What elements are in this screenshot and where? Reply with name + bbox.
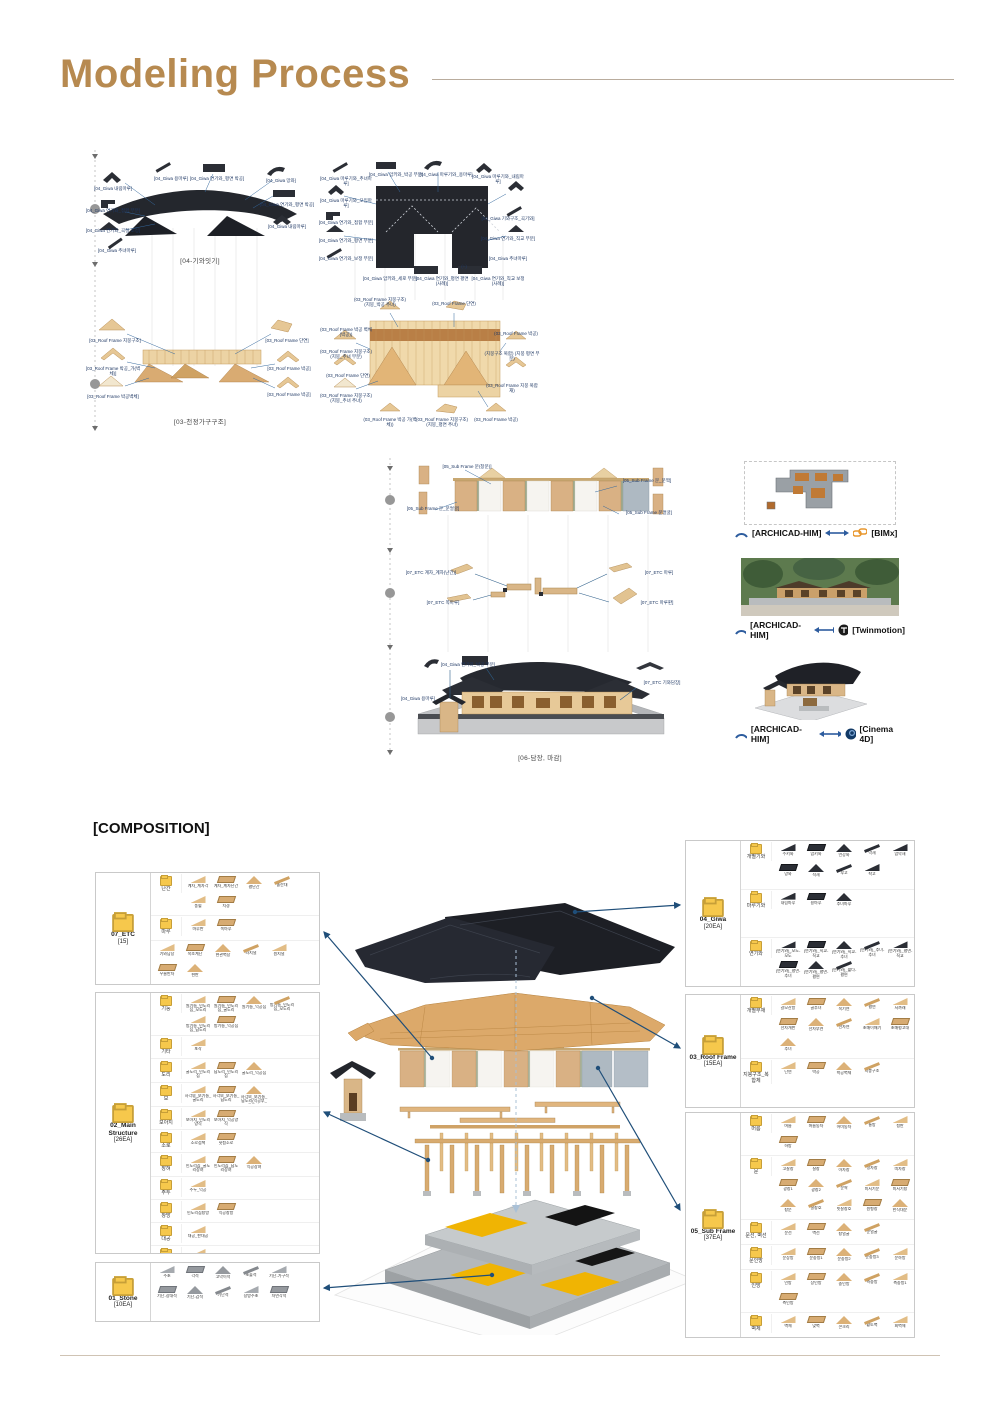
part-item-label: 선자부연	[803, 1027, 830, 1036]
part-item: 적새	[803, 863, 830, 882]
part-item-label: 황토벽	[859, 1323, 886, 1332]
panel-title: 04_Giwa	[700, 916, 726, 924]
twinmotion-render-thumbnail	[741, 558, 899, 616]
part-label: [04_Giwa 연기와_평면 박공]	[189, 176, 245, 181]
part-item: 민도리집_굴도리장혀	[185, 1155, 212, 1174]
part-item-label: 살창	[803, 1167, 830, 1176]
swap-arrows-icon	[819, 730, 841, 738]
part-item: 초매평고대	[887, 1017, 914, 1036]
part-item: (연기와)_짧다-평면	[831, 960, 858, 979]
part-item-label: 원기둥_민도리집_모도리	[185, 1004, 212, 1013]
part-item-label: 선자연	[831, 1025, 858, 1034]
part-icon	[865, 864, 880, 871]
part-item: 중인방	[831, 1272, 858, 1291]
poster-page: Modeling Process	[0, 0, 1000, 1413]
part-item: 자연각석	[266, 1285, 293, 1304]
part-item-label: 라지널	[238, 951, 265, 960]
part-item-label: 보아지_익공양식	[213, 1118, 240, 1127]
part-item-label: 띠자창	[887, 1167, 914, 1176]
part-item-label: (연기와)_추녀-추녀	[859, 948, 886, 957]
cinema4d-icon	[845, 728, 856, 740]
part-item-label: 사각보_보기둥_납도리	[213, 1094, 240, 1103]
wood-roof-layer	[360, 993, 665, 1051]
part-item: 측중방1	[887, 1272, 914, 1291]
part-item-label: 창문	[775, 1208, 802, 1217]
part-item-label: 막새	[859, 851, 886, 860]
part-item: 암막새	[887, 843, 914, 862]
part-item: 계자_계자각	[185, 875, 212, 894]
part-icon	[806, 941, 825, 948]
part-item-label: 추녀	[775, 1047, 802, 1056]
part-item-label: 자연각석	[266, 1294, 293, 1303]
part-label: [04_Giwa 암키와_박공 부분]	[368, 172, 424, 177]
part-item-label: 문하방	[887, 1256, 914, 1265]
part-icon	[191, 896, 206, 903]
part-icon	[216, 1133, 235, 1140]
cinema4d-render-thumbnail	[741, 650, 899, 720]
part-item-label: 헛첨소로	[213, 1141, 240, 1150]
part-icon	[806, 1159, 825, 1166]
part-icon	[216, 896, 235, 903]
roof-frame-elevation-diagram: [03_Roof Frame 지붕구조][03_Roof Frame 단연][0…	[85, 298, 315, 426]
part-item: 원기둥_익공집	[241, 995, 268, 1014]
folder-icon	[750, 1223, 762, 1233]
part-item: 목조계단	[182, 943, 209, 962]
part-icon	[187, 1286, 203, 1294]
part-item-label: 평난간	[241, 885, 268, 894]
swap-arrows-icon	[825, 529, 849, 537]
part-item-label: 원기둥_익공집	[241, 1005, 268, 1014]
part-item-label: 벽체	[775, 1324, 802, 1333]
part-icon	[780, 1038, 796, 1046]
part-item-label: 치경	[213, 904, 240, 913]
part-item: 측인방	[775, 1292, 802, 1310]
roof-frame-plan-diagram: (03_Roof Frame 지붕구조) (지붕_박공 추녀)(03_Roof …	[318, 293, 533, 433]
group-label: 장혀	[161, 1167, 170, 1173]
part-icon	[216, 1203, 235, 1210]
part-icon	[836, 941, 852, 949]
part-item: 각석	[182, 1265, 209, 1284]
export-caption: [ARCHICAD-HIM] [Twinmotion]	[735, 620, 905, 640]
part-label: [03_Roof Frame 박공]	[261, 392, 317, 397]
group-label: 기타	[161, 1050, 170, 1056]
part-group: 기둥원기둥_민도리집_모도리원기둥_민도리집_굴도리원기둥_익공집방기둥_민도리…	[151, 993, 319, 1035]
part-item: 콘크리	[831, 1315, 858, 1334]
part-item-label: 용마루	[803, 901, 830, 910]
panel-02-main-structure: 02_Main Structure[26EA]기둥원기둥_민도리집_모도리원기둥…	[95, 992, 320, 1254]
part-icon	[246, 996, 262, 1004]
part-item: 초매이매기	[859, 1017, 886, 1036]
part-icon	[806, 1248, 825, 1255]
part-group: 기와담장목조계단현관벽장라지널원지널우물반자현판	[151, 940, 319, 984]
folder-icon	[160, 1180, 172, 1190]
part-item: (연기와)_모도-모도	[775, 940, 802, 959]
part-item-label: 미서기문	[859, 1187, 886, 1196]
part-item: 문상방	[775, 1247, 802, 1266]
part-label: [05_Sub Frame 문_문짝]	[619, 478, 675, 483]
part-label: [04_Giwa 추녀마루]	[480, 256, 536, 261]
part-icon	[893, 1159, 908, 1166]
part-icon	[191, 1203, 206, 1210]
part-item: 인방	[775, 1272, 802, 1291]
part-item: 목기연	[831, 997, 858, 1016]
part-item-label: 어미동자	[831, 1125, 858, 1134]
part-icon	[191, 1249, 206, 1254]
part-item-label: 방기둥_민도리집_모도리	[269, 1003, 296, 1012]
part-icon	[865, 1018, 880, 1025]
part-item: 부고	[831, 863, 858, 882]
part-item: 원기둥_민도리집_모도리	[185, 995, 212, 1014]
part-item-label: (연기와)_짧다-평면	[831, 968, 858, 977]
part-icon	[191, 996, 206, 1003]
part-item-label: 보아지_민도리양식	[185, 1118, 212, 1127]
folder-icon	[112, 1278, 134, 1296]
part-item-label: 포작	[185, 1047, 212, 1056]
export-left-app: [ARCHICAD-HIM]	[750, 620, 809, 640]
part-label: [04_Giwa 추녀마루]	[89, 248, 145, 253]
part-item: 황토벽	[859, 1315, 886, 1334]
part-item: 민도리집창방	[185, 1202, 212, 1220]
part-group: 도리굴도리_민도리집납도리_민도리집굴도리_익공집	[151, 1058, 319, 1082]
folder-icon	[160, 1226, 172, 1236]
folder-icon	[160, 1249, 172, 1254]
part-item-label: 주초	[154, 1274, 181, 1283]
part-label: (03_Roof Frame 단연)	[320, 373, 376, 378]
etc-parts-diagram: [07_ETC 계자_계자(난간)][07_ETC 쪽마루][07_ETC 마루…	[395, 548, 685, 618]
page-title: Modeling Process	[60, 52, 410, 97]
part-item-label: 광창1	[775, 1187, 802, 1196]
part-icon	[806, 844, 825, 851]
part-label: [03_Roof Frame 박공벽체]	[85, 394, 141, 399]
part-item-label: 맞벽	[803, 1324, 830, 1333]
part-label: [04_Giwa 연기와_접합 부분]	[85, 208, 141, 213]
part-item-label: 문중방1	[803, 1256, 830, 1265]
part-icon	[191, 1180, 206, 1187]
part-icon	[836, 1159, 852, 1167]
folder-icon	[160, 919, 172, 929]
part-item-label: 골추녀	[803, 1006, 830, 1015]
part-label: [05_Sub Frame 문_문얼굴]	[405, 506, 461, 511]
folder-icon	[160, 1110, 172, 1120]
part-item: 고살창	[775, 1158, 802, 1177]
part-icon	[191, 1110, 206, 1117]
part-icon	[893, 1316, 908, 1323]
part-item: 선자연	[831, 1017, 858, 1036]
panel-count: [15]	[118, 939, 128, 945]
part-item: 현관벽장	[210, 943, 237, 962]
part-item-label: (연기와)_평면-추녀	[775, 969, 802, 978]
part-label: [03_Roof Frame 박공_가(벽체)]	[85, 366, 141, 376]
part-item: 빗살창호	[831, 1198, 858, 1217]
export-card-twinmotion: [ARCHICAD-HIM] [Twinmotion]	[735, 558, 905, 640]
part-item-label: 인방	[775, 1281, 802, 1290]
part-label: (03_Roof Frame 박공)	[488, 331, 544, 336]
diagram-caption: [03-천정가구구조]	[85, 416, 315, 426]
part-item: 아자창	[831, 1158, 858, 1177]
part-label: [04_Giwa 내림마루]	[85, 186, 141, 191]
part-item: (연기와)_직교-직교	[803, 940, 830, 959]
part-icon	[781, 1273, 796, 1280]
part-icon	[781, 1159, 796, 1166]
part-item-label: 문짝	[831, 1186, 858, 1195]
part-item-label: 서까래	[887, 1006, 914, 1015]
part-icon	[272, 1266, 287, 1273]
part-item-label: 마루판	[185, 927, 212, 936]
group-label: 개별부재	[747, 1009, 765, 1015]
folder-icon	[750, 1316, 762, 1326]
bottom-rule	[60, 1355, 940, 1356]
export-right-app: [Twinmotion]	[852, 625, 905, 635]
part-item-label: 굴도리_민도리집	[185, 1070, 212, 1079]
part-item: 기단-장대석	[154, 1285, 181, 1304]
part-item-label: 우물반자	[154, 972, 181, 981]
part-item: 하방	[775, 1135, 802, 1153]
export-caption: [ARCHICAD-HIM] [Cinema 4D]	[735, 724, 905, 744]
part-icon	[216, 1086, 235, 1093]
part-icon	[781, 1116, 796, 1123]
part-icon	[246, 876, 262, 884]
part-icon	[216, 1062, 235, 1069]
part-icon	[781, 1248, 796, 1255]
part-item: 막새	[859, 843, 886, 862]
part-label: [03_Roof Frame 단연]	[259, 338, 315, 343]
folder-icon	[750, 893, 762, 903]
part-label: [04_Giwa 암키와_세로 부분]	[362, 276, 418, 281]
folder-icon	[702, 899, 724, 917]
part-item-label: 굴도리_익공집	[241, 1071, 268, 1080]
archicad-arc-icon	[735, 730, 747, 739]
part-item-label: 상인방	[803, 1281, 830, 1290]
part-icon	[216, 1156, 235, 1163]
group-label: 도리	[161, 1073, 170, 1079]
part-item-label: 기와담장	[154, 952, 181, 961]
part-icon	[246, 1156, 262, 1164]
part-item: (연기와)_추녀-추녀	[859, 940, 886, 959]
folder-icon	[160, 1086, 172, 1096]
part-item: 방기둥_민도리집_모도리	[269, 995, 296, 1014]
part-item-label: 살창호	[803, 1206, 830, 1215]
folder-icon	[160, 996, 172, 1006]
group-label: 난간	[161, 887, 170, 893]
part-label: [04_Giwa 마루기와_모임마루]	[318, 198, 374, 208]
part-item: 망와	[775, 863, 802, 882]
part-item-label: 원기둥_민도리집_굴도리	[213, 1004, 240, 1013]
part-icon	[836, 1223, 852, 1231]
folder-icon	[750, 844, 762, 854]
part-item: 상인방	[803, 1272, 830, 1291]
part-label: [04_Giwa 연기와_평면 부분]	[318, 238, 374, 243]
part-group: 벽체벽체맞벽콘크리황토벽회벽체	[741, 1312, 914, 1337]
part-item: 평연	[859, 997, 886, 1016]
group-label: 창방	[161, 1214, 170, 1220]
group-label: 문	[754, 1170, 759, 1176]
part-item: 박공벽체	[831, 1061, 858, 1080]
group-label: 문선, 벽선	[745, 1234, 766, 1240]
part-item: 골추녀	[803, 997, 830, 1016]
wall-subframe-diagram: [05_Sub Frame 문(창문)][05_Sub Frame 문_문짝][…	[395, 458, 685, 536]
part-item-label: 광창2	[803, 1188, 830, 1197]
part-item: 헛첨소로	[213, 1132, 240, 1150]
part-item: 주두_익공	[185, 1179, 212, 1197]
part-item: 용마루	[803, 892, 830, 911]
part-item-label: 장방주초	[238, 1294, 265, 1303]
export-caption: [ARCHICAD-HIM] [BIMx]	[735, 528, 905, 538]
part-item: 원형창	[859, 1198, 886, 1217]
roof-frame-plan-art	[318, 293, 533, 433]
panel-count: [10EA]	[114, 1302, 132, 1308]
part-group: 난간계자_계자각계자_계자난간평난간돌란대풍혈치경	[151, 873, 319, 915]
part-item: 띠자창	[887, 1158, 914, 1177]
part-item-label: 돌란대	[269, 883, 296, 892]
part-item: 계자_계자난간	[213, 875, 240, 894]
part-item: 암키와	[803, 843, 830, 862]
part-group: 보아지보아지_민도리양식보아지_익공양식	[151, 1106, 319, 1129]
part-label: [04_Giwa 용마루]	[390, 696, 446, 701]
part-icon	[836, 998, 852, 1006]
part-icon	[837, 1199, 852, 1206]
part-item: 돌란대	[269, 875, 296, 894]
part-item: 착고	[859, 863, 886, 882]
part-item: 라지널	[238, 943, 265, 962]
part-item-label: 박공벽체	[831, 1071, 858, 1080]
folder-icon	[702, 1211, 724, 1229]
folder-icon	[160, 1133, 172, 1143]
part-icon	[808, 961, 824, 969]
folder-icon	[112, 1105, 134, 1123]
part-item: 단연	[775, 1061, 802, 1080]
part-item: 창얼굴	[831, 1222, 858, 1241]
part-icon	[893, 941, 908, 948]
timber-structure-layer	[415, 1125, 640, 1196]
part-item-label: 소로접책	[185, 1141, 212, 1150]
part-item-label: 사각보_보기둥_납도리(익공부_굴도리)	[241, 1095, 268, 1104]
part-item: 광창1	[775, 1178, 802, 1197]
part-item-label: 부고	[831, 871, 858, 880]
part-item-label: (연기와)_모도-모도	[775, 949, 802, 958]
part-item-label: 착고	[859, 872, 886, 881]
part-label: (03_Roof Frame 지붕구조) (지붕_추녀 추녀)	[318, 393, 374, 403]
part-group: 지붕구조_복합체단연박공박공벽체지붕구조	[741, 1058, 914, 1107]
part-item: 선자개판	[775, 1017, 802, 1036]
part-icon	[778, 1018, 797, 1025]
part-item-label: 현판	[182, 973, 209, 982]
part-icon	[191, 1226, 206, 1233]
part-item-label: 측중방1	[887, 1281, 914, 1290]
part-label: (03_Roof Frame 지붕구조) (지붕_추녀 부분)	[318, 349, 374, 359]
part-label: [04_Giwa 망와]	[253, 178, 309, 183]
panel-count: [15EA]	[704, 1061, 722, 1067]
part-item: 사각보_보기둥_굴도리	[185, 1085, 212, 1104]
wall-layer-art	[395, 458, 685, 536]
part-item-label: 초매이매기	[859, 1026, 886, 1035]
part-icon	[216, 876, 235, 883]
part-item: 측중방	[859, 1272, 886, 1291]
part-icon	[269, 1286, 288, 1293]
export-right-app: [BIMx]	[871, 528, 897, 538]
part-icon	[216, 1016, 235, 1023]
part-item-label: 창얼굴	[831, 1232, 858, 1241]
twinmotion-icon	[838, 624, 848, 636]
part-icon	[191, 1016, 206, 1023]
part-item: 어미동자	[831, 1115, 858, 1134]
part-icon	[836, 893, 852, 901]
part-item: 기단-가구석	[266, 1265, 293, 1284]
part-item: 방기둥_익공집	[213, 1015, 240, 1033]
part-label: [03_Roof Frame 박공]	[261, 366, 317, 371]
part-item-label: 중인방	[831, 1282, 858, 1291]
part-label: [04_Giwa 연기와_보정 부분]	[318, 256, 374, 261]
part-item-label: (연기와)_직교-추녀	[831, 950, 858, 959]
part-icon	[892, 1199, 908, 1207]
part-icon	[865, 1179, 880, 1186]
folder-icon	[160, 1062, 172, 1072]
part-icon	[191, 919, 206, 926]
panel-03-roof-frame: 03_Roof Frame[15EA]개별부재갈모산방골추녀목기연평연서까래선자…	[685, 994, 915, 1108]
part-label: [05_Sub Frame 문얼굴]	[621, 510, 677, 515]
part-item: 평방	[185, 1248, 212, 1254]
part-item-label: 기단-장대석	[154, 1294, 181, 1303]
group-label: 머름	[751, 1127, 760, 1133]
part-icon	[781, 941, 796, 948]
part-icon	[191, 876, 206, 883]
part-icon	[185, 1266, 204, 1273]
part-group: 소로소로접책헛첨소로	[151, 1129, 319, 1152]
part-item: (연기와)_평면-추녀	[775, 960, 802, 979]
export-right-app: [Cinema 4D]	[860, 724, 905, 744]
panel-count: [26EA]	[114, 1137, 132, 1143]
part-label: (+)	[436, 264, 492, 269]
part-item-label: 기단-갑석	[182, 1295, 209, 1304]
part-item-label: 민도리집_굴도리장혀	[185, 1164, 212, 1173]
part-item-label: 익공장혀	[241, 1165, 268, 1174]
part-item-label: (연기와)_직교-직교	[803, 949, 830, 958]
part-icon	[160, 1266, 175, 1273]
part-label: (03_Roof Frame 지붕 복합재)	[484, 383, 540, 393]
panel-count: [20EA]	[704, 924, 722, 930]
giwa-laying-plan-diagram: [04_Giwa 마루기와_추녀마루][04_Giwa 암키와_박공 부분][0…	[318, 148, 533, 293]
part-icon	[781, 998, 796, 1005]
part-icon	[836, 1273, 852, 1281]
group-label: 마루	[161, 930, 170, 936]
part-label: [04_Giwa 연기와_박공 부분]	[440, 662, 496, 667]
part-group: 평방평방	[151, 1245, 319, 1254]
part-icon	[778, 961, 797, 968]
bimx-plan-thumbnail	[745, 462, 895, 524]
part-item: 문중방1	[803, 1247, 830, 1266]
part-item: 보아지_민도리양식	[185, 1109, 212, 1127]
group-label: 지붕구조_복합체	[741, 1073, 771, 1084]
part-item-label: 측중방	[859, 1280, 886, 1289]
part-icon	[808, 1018, 824, 1026]
part-icon	[185, 944, 204, 951]
part-item: 살창호	[803, 1198, 830, 1217]
panel-01-stone: 01_Stone[10EA]주초각석고막이석초출석기단-가구석기단-장대석기단-…	[95, 1262, 320, 1322]
part-item-label: 아자창	[831, 1168, 858, 1177]
part-icon	[808, 1179, 824, 1187]
part-item: 갈모산방	[775, 997, 802, 1016]
part-group: 개별기와수키와암키와언강와막새암막새망와적새부고착고	[741, 841, 914, 889]
part-item-label: 사각보_보기둥_굴도리	[185, 1094, 212, 1103]
part-item: 소로접책	[185, 1132, 212, 1150]
part-item-label: 수키와	[775, 852, 802, 861]
part-icon	[246, 1086, 262, 1094]
part-item: 문짝	[831, 1178, 858, 1197]
export-left-app: [ARCHICAD-HIM]	[751, 724, 815, 744]
part-item-label: 벽선	[803, 1231, 830, 1240]
archicad-arc-icon	[735, 529, 748, 538]
part-label: [04_Giwa 연기와_직교 보정(사례)]	[470, 276, 526, 286]
folder-icon	[750, 1159, 762, 1169]
